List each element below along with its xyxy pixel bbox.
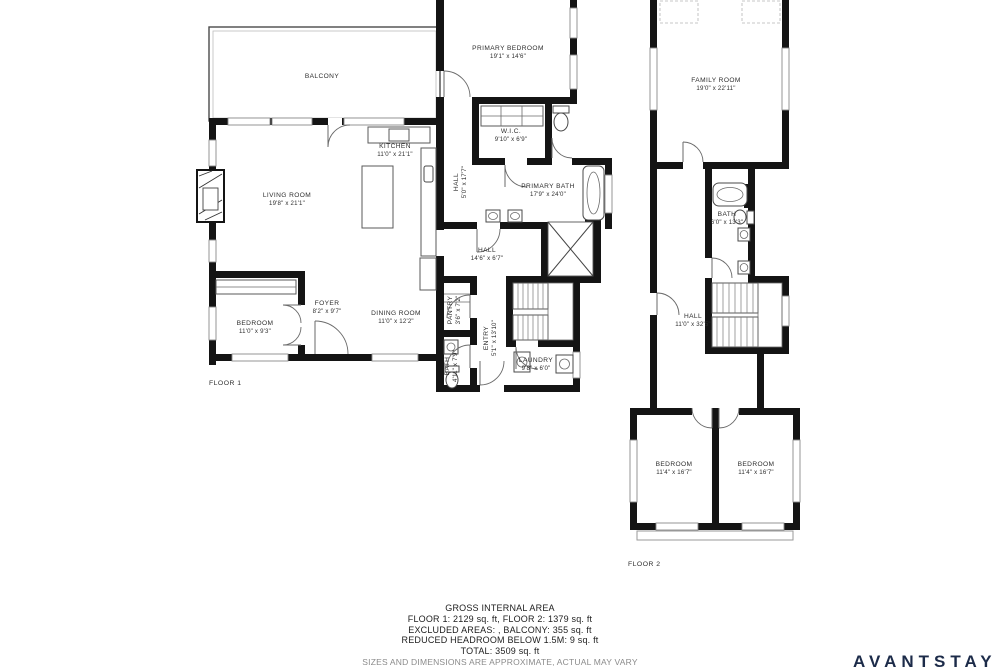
room-dims-entry: 5'1" x 13'10" [491,320,498,356]
room-label-dining-room: DINING ROOM [371,310,421,317]
room-dims-hall2: 11'0" x 32'5" [675,321,711,328]
room-dims-dining-room: 11'0" x 12'2" [378,318,414,325]
summary-disclaimer: SIZES AND DIMENSIONS ARE APPROXIMATE, AC… [0,657,1000,667]
room-label-bedroom-right: BEDROOM [738,461,775,468]
room-dims-wic: 9'10" x 6'9" [495,136,527,143]
room-label-bath1: BATH [444,357,451,376]
room-dims-hall1: 14'6" x 6'7" [471,255,503,262]
room-label-laundry: LAUNDRY [519,357,553,364]
summary-floor-areas: FLOOR 1: 2129 sq. ft, FLOOR 2: 1379 sq. … [0,614,1000,625]
toilet-icon [553,106,569,131]
floor-plan-drawing: BALCONY LIVING ROOM 19'8" x 21'1" KITCHE… [0,0,1000,667]
floor2-label: FLOOR 2 [628,561,661,568]
room-dims-bath2: 6'0" x 13'3" [711,219,743,226]
summary-total-area: TOTAL: 3509 sq. ft [0,646,1000,657]
shower-icon [548,222,593,276]
summary-excluded-areas: EXCLUDED AREAS: , BALCONY: 355 sq. ft [0,625,1000,636]
room-label-foyer: FOYER [315,300,340,307]
stairs-floor2 [712,283,782,347]
stairs-floor1 [513,283,573,340]
room-dims-hall-upper: 5'0" x 17'7" [461,166,468,198]
room-dims-primary-bath: 17'9" x 24'0" [530,191,566,198]
floor2-plan: FAMILY ROOM 19'0" x 22'11" BATH 6'0" x 1… [628,0,800,568]
room-label-bath2: BATH [718,211,737,218]
porch-outline [637,531,793,540]
kitchen-island [362,166,393,228]
room-label-primary-bedroom: PRIMARY BEDROOM [472,45,544,52]
wic-wardrobe [481,106,543,126]
room-label-hall-upper: HALL [453,173,460,191]
room-label-hall2: HALL [684,313,702,320]
room-label-kitchen: KITCHEN [379,143,411,150]
room-dims-bedroom-right: 11'4" x 16'7" [738,469,774,476]
room-dims-bedroom1: 11'0" x 9'3" [239,328,271,335]
room-label-primary-bath: PRIMARY BATH [521,183,575,190]
summary-title: GROSS INTERNAL AREA [0,603,1000,614]
floor1-label: FLOOR 1 [209,380,242,387]
room-label-bedroom1: BEDROOM [237,320,274,327]
fireplace [197,170,224,222]
room-label-pantry: PANTRY [447,296,454,325]
floor-plan-page: BALCONY LIVING ROOM 19'8" x 21'1" KITCHE… [0,0,1000,667]
floor1-plan: BALCONY LIVING ROOM 19'8" x 21'1" KITCHE… [197,0,612,392]
room-label-bedroom-left: BEDROOM [656,461,693,468]
room-dims-family-room: 19'0" x 22'11" [696,85,735,92]
avantstay-logo: AVANTSTAY [853,652,1000,667]
room-label-balcony: BALCONY [305,73,340,80]
room-dims-kitchen: 11'0" x 21'1" [377,151,413,158]
room-dims-primary-bedroom: 19'1" x 14'6" [490,53,526,60]
bath-sinks [486,210,522,222]
room-dims-bedroom-left: 11'4" x 16'7" [656,469,692,476]
room-label-hall1: HALL [478,247,496,254]
room-label-living-room: LIVING ROOM [263,192,311,199]
room-dims-living-room: 19'8" x 21'1" [269,200,305,207]
room-label-family-room: FAMILY ROOM [691,77,741,84]
room-dims-foyer: 8'2" x 9'7" [313,308,342,315]
room-label-entry: ENTRY [483,326,490,350]
room-dims-bath1: 4'11" x 7'9" [452,350,459,382]
bedroom-closet [216,280,296,294]
room-dims-laundry: 9'8" x 6'0" [522,365,551,372]
room-label-wic: W.I.C. [501,128,521,135]
bathtub-icon [583,166,604,220]
summary-reduced-headroom: REDUCED HEADROOM BELOW 1.5M: 9 sq. ft [0,635,1000,646]
family-room-closets [660,1,780,23]
room-dims-pantry: 3'6" x 7'2" [455,296,462,325]
area-summary: GROSS INTERNAL AREA FLOOR 1: 2129 sq. ft… [0,603,1000,667]
